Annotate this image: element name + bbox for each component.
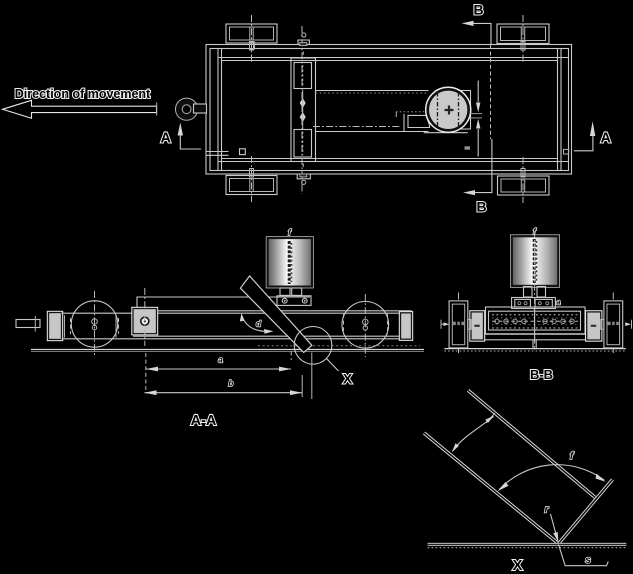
svg-text:B: B	[473, 2, 483, 18]
svg-text:X: X	[343, 371, 353, 387]
svg-text:a: a	[218, 356, 223, 365]
svg-text:B-B: B-B	[530, 367, 553, 382]
svg-text:b: b	[228, 379, 233, 388]
svg-text:B: B	[476, 199, 486, 215]
svg-text:Direction of movement: Direction of movement	[15, 87, 151, 101]
svg-text:X: X	[512, 557, 522, 574]
svg-text:A: A	[601, 131, 612, 147]
svg-text:A-A: A-A	[191, 413, 217, 429]
svg-text:A: A	[161, 131, 172, 147]
svg-text:s: s	[585, 555, 591, 566]
svg-text:a: a	[557, 300, 561, 307]
